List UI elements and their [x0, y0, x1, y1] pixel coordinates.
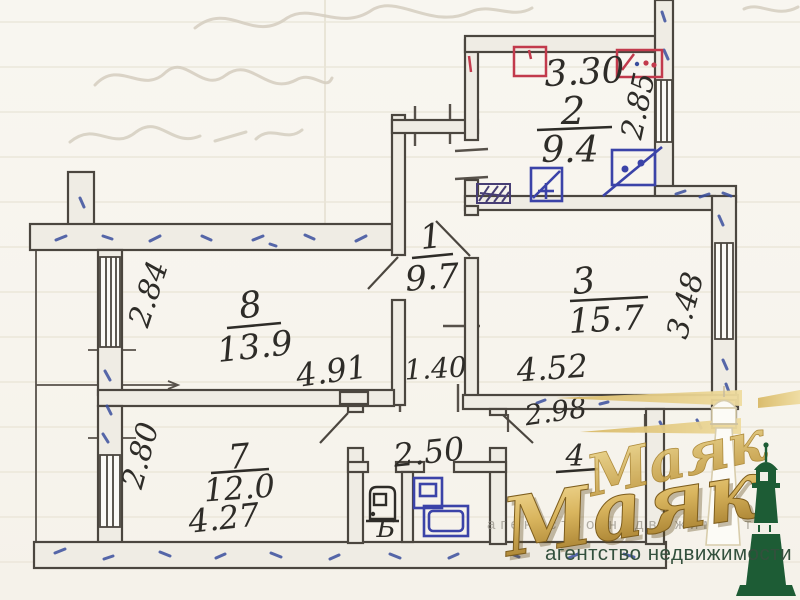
washbasin-icon	[414, 478, 442, 508]
room-number: 2	[560, 89, 585, 133]
window-room7-left	[100, 455, 120, 527]
window-room3-right	[715, 243, 733, 339]
wall-toilet-left-upper	[348, 406, 363, 412]
window-room8-left	[100, 257, 120, 347]
room-number: 1	[418, 216, 444, 258]
wall-toilet-bath-divider	[402, 472, 413, 542]
wall-wc-top-1	[348, 462, 368, 472]
bathtub-icon	[424, 506, 468, 536]
wall-corridor-right-upper	[490, 409, 506, 415]
door-leaf-room8	[368, 257, 398, 289]
door-leaf-room7	[320, 413, 348, 443]
room-area: 15.7	[568, 298, 646, 342]
room-area: 9.4	[541, 130, 598, 171]
dimension-label: 2.50	[390, 429, 466, 474]
room-number: 8	[236, 284, 264, 328]
scanned-floor-plan-page: 2 9.4 3.30 2.85 1 9.7 1.40 3 15.7 4.52 3…	[0, 0, 800, 600]
room-number: 3	[570, 260, 597, 303]
wall-room3-left-upper	[465, 206, 478, 215]
dimension-label: 4.27	[185, 495, 261, 540]
dimension-label: 1.40	[404, 350, 468, 386]
wall-kitchen-left-upper	[465, 40, 478, 140]
dimension-label: 2.84	[122, 257, 176, 332]
watermark-tagline: агентство недвижимости	[545, 542, 792, 565]
wall-top	[30, 224, 392, 250]
room-label-toilet: Б	[375, 514, 395, 544]
dimension-label: 4.52	[514, 347, 589, 390]
room-area: 13.9	[215, 323, 294, 371]
wall-hall-left-upper	[392, 115, 405, 255]
wall-corridor-stub-left	[340, 392, 368, 404]
dimension-label: 3.48	[660, 269, 711, 343]
stove-icon	[603, 147, 662, 196]
dimension-label: 4.91	[293, 347, 370, 395]
dimension-label: 3.30	[543, 50, 625, 95]
floor-plan-drawing: 2 9.4 3.30 2.85 1 9.7 1.40 3 15.7 4.52 3…	[0, 0, 800, 600]
room-area: 9.7	[404, 256, 461, 300]
